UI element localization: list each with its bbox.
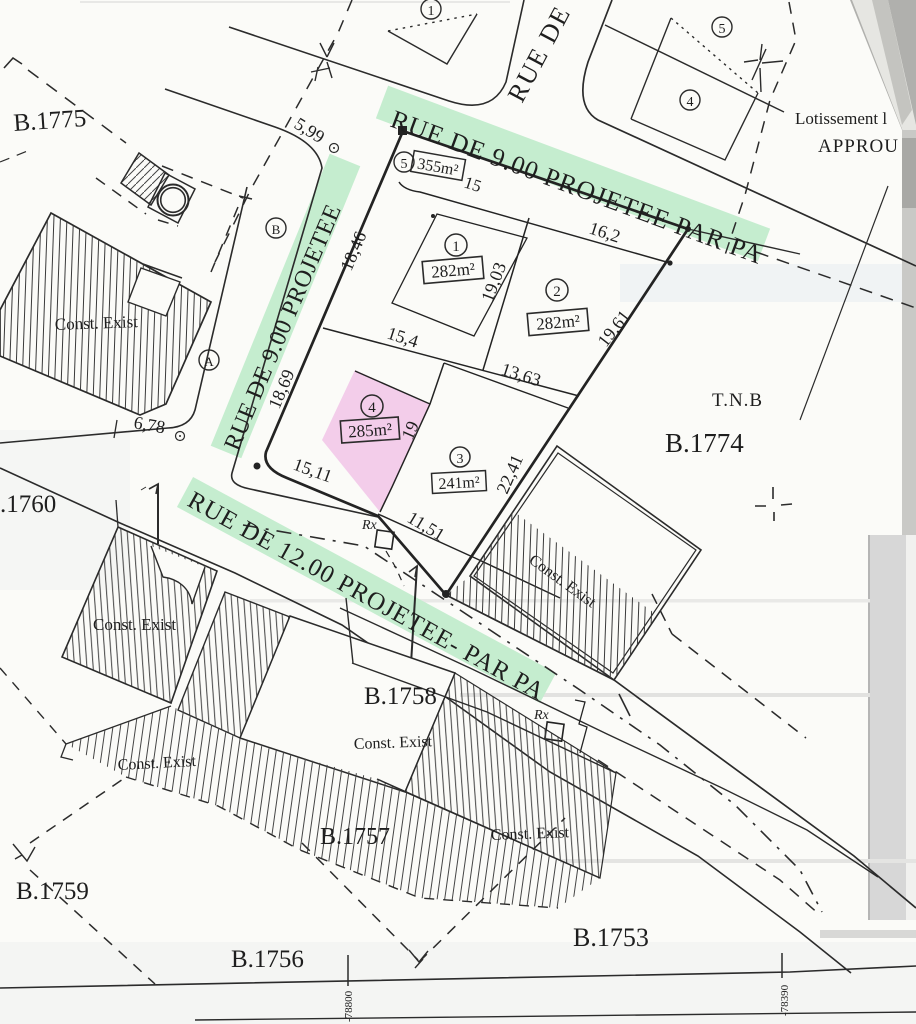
svg-text:285m²: 285m² [348,419,393,441]
svg-text:Const. Exist: Const. Exist [93,615,176,634]
svg-text:1: 1 [428,4,435,19]
svg-text:4: 4 [687,95,694,110]
svg-text:1: 1 [452,239,460,255]
svg-text:B.1756: B.1756 [231,946,304,973]
svg-text:.1760: .1760 [0,491,56,518]
svg-text:5: 5 [719,22,726,37]
svg-text:-78390: -78390 [779,984,791,1016]
svg-text:Const. Exist: Const. Exist [54,312,138,334]
svg-text:2: 2 [553,284,561,300]
svg-text:APPROU: APPROU [818,136,899,157]
svg-text:B.1758: B.1758 [364,683,437,710]
svg-text:3: 3 [457,452,464,467]
svg-text:Rx: Rx [533,708,550,723]
svg-text:B.1753: B.1753 [573,923,649,952]
svg-text:5: 5 [401,157,408,172]
svg-text:B.1775: B.1775 [13,105,88,137]
svg-text:Rx: Rx [361,518,378,533]
svg-text:282m²: 282m² [430,259,475,282]
svg-text:Lotissement l: Lotissement l [795,109,887,128]
svg-text:B.1774: B.1774 [665,428,744,458]
svg-text:B.1757: B.1757 [320,824,390,850]
svg-text:T.N.B: T.N.B [712,390,763,411]
svg-text:A: A [204,354,214,369]
svg-text:B.1759: B.1759 [16,878,89,905]
svg-text:Const. Exist: Const. Exist [491,824,570,844]
svg-text:282m²: 282m² [535,311,580,334]
svg-text:4: 4 [368,400,376,416]
svg-text:241m²: 241m² [438,474,480,493]
svg-text:Const. Exist: Const. Exist [354,733,433,753]
svg-text:B: B [272,222,281,237]
svg-text:-78800: -78800 [343,990,355,1022]
